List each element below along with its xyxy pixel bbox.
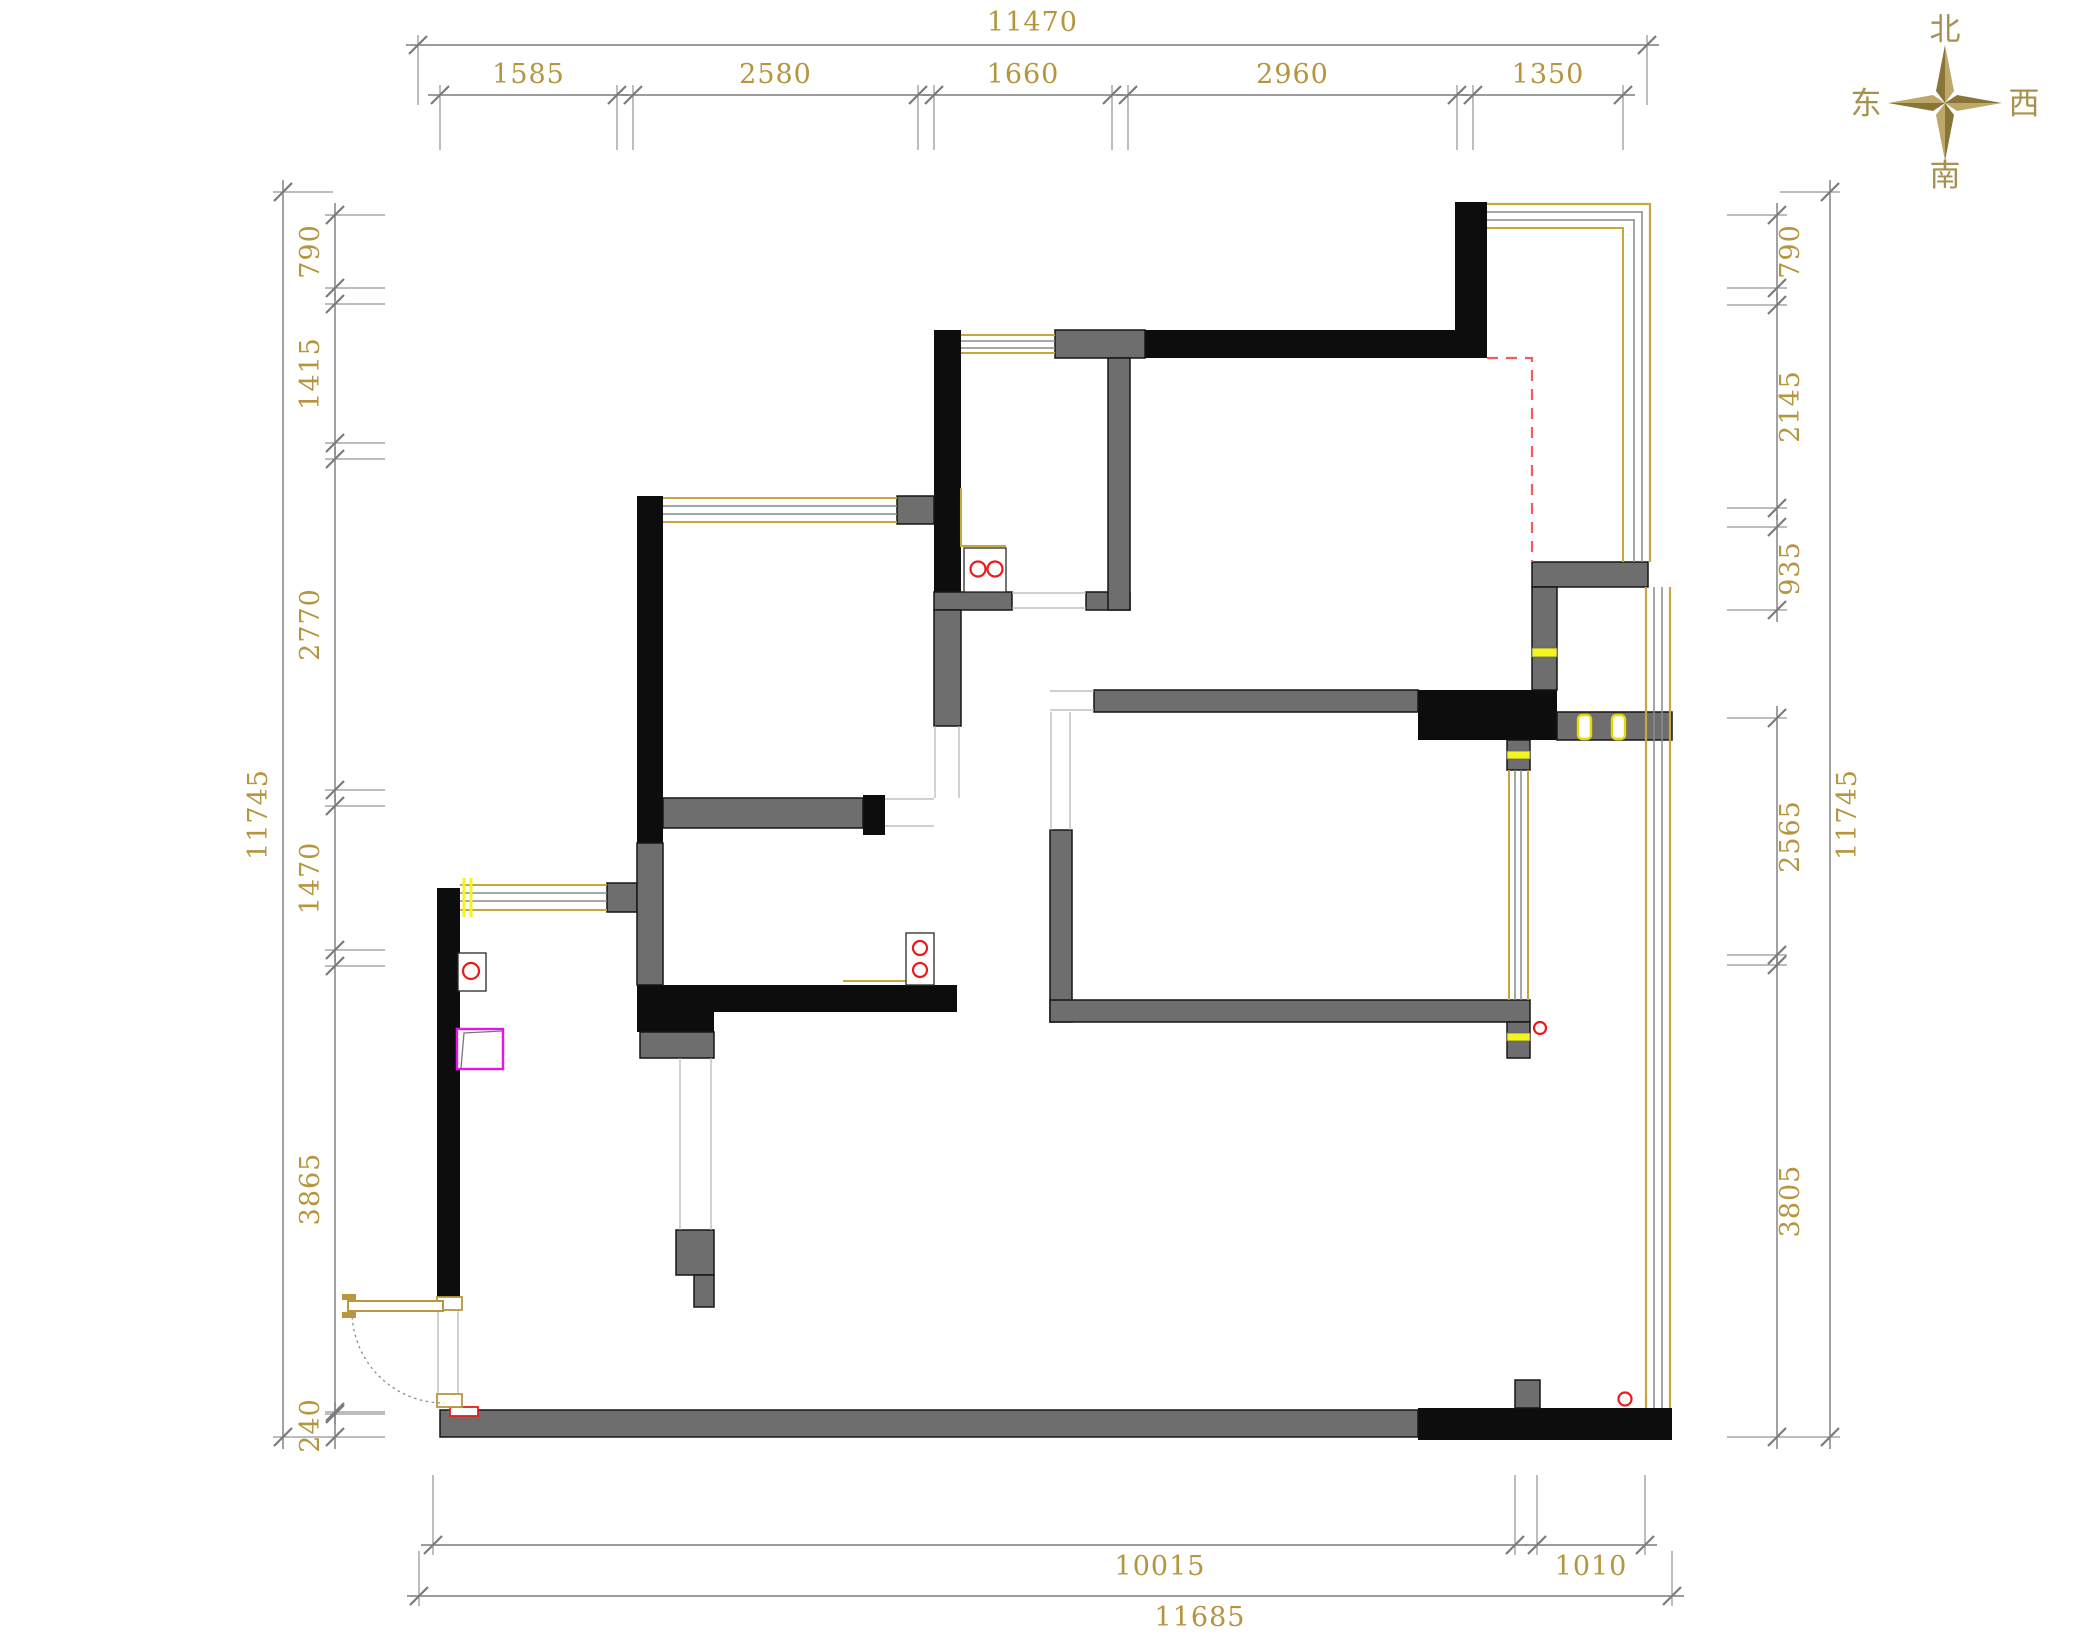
wall-kitchen-right [1108, 358, 1130, 610]
dim-label: 11685 [1155, 1602, 1246, 1633]
dim-label: 790 [1775, 224, 1806, 279]
wall-topright-bar [1455, 202, 1487, 330]
compass-south-label: 南 [1930, 158, 1961, 194]
wall-underbath-ext [640, 1032, 714, 1058]
dim-label: 10015 [1115, 1551, 1206, 1582]
walls-gray [440, 330, 1672, 1437]
wall-left-outer [437, 888, 460, 1301]
window-top-wall [961, 335, 1055, 353]
socket-icon [1612, 715, 1625, 739]
compass: 北 南 东 西 [1851, 12, 2040, 194]
socket-icon [1578, 715, 1591, 739]
dim-label: 1010 [1555, 1551, 1628, 1582]
wall-bottom-post [1515, 1380, 1540, 1408]
wall-foyer-window-post [607, 883, 637, 912]
wall-bedroom-bottom [1050, 1000, 1530, 1022]
red-dashed-line [1487, 358, 1532, 562]
compass-east-label: 东 [1851, 86, 1882, 122]
dim-label: 240 [295, 1398, 326, 1453]
wall-top [1145, 330, 1487, 358]
wall-bath-top [663, 798, 863, 828]
kitchen-counter-line [961, 488, 1006, 546]
floor-plan-page: 1147015852580166029601350117457901415277… [0, 0, 2096, 1637]
door-swing-arc [352, 1311, 444, 1403]
wall-balcony-sill-leg [1532, 587, 1557, 690]
wall-bedroom-top [1094, 690, 1418, 712]
dim-label: 1585 [492, 59, 565, 90]
fixtures [342, 358, 1632, 1416]
window-foyer [460, 878, 607, 917]
dim-label: 11470 [987, 7, 1078, 38]
window-bed2 [663, 498, 897, 522]
wall-bath-post [863, 795, 885, 835]
wall-kitchen-left [934, 330, 961, 594]
door-leaf [348, 1301, 443, 1311]
dim-label: 2770 [295, 588, 326, 661]
wall-bath-left [637, 843, 663, 985]
dim-label: 11745 [1832, 769, 1863, 860]
wall-top-gray-block [1055, 330, 1145, 358]
wall-bath-bottom [637, 985, 957, 1012]
wall-bed2-left [637, 496, 663, 843]
wall-kitchen-bottom [934, 592, 1012, 610]
dim-label: 2960 [1256, 59, 1329, 90]
dim-label: 11745 [243, 769, 274, 860]
wall-entry-stub [676, 1230, 714, 1275]
dim-label: 1660 [987, 59, 1060, 90]
dim-label: 935 [1775, 541, 1806, 596]
compass-north-label: 北 [1930, 12, 1961, 48]
window-balcony-top [1487, 204, 1650, 562]
wall-bottom-gray [440, 1410, 1418, 1437]
dim-label: 2565 [1775, 800, 1806, 873]
window-bedroom-right [1509, 770, 1528, 1000]
red-mark-rect [450, 1407, 478, 1416]
wall-entry-stub-step [694, 1275, 714, 1307]
window-balcony-right [1646, 587, 1670, 1408]
dimension-chains: 1147015852580166029601350117457901415277… [243, 7, 1863, 1633]
dim-label: 3805 [1775, 1165, 1806, 1238]
dim-label: 3865 [295, 1153, 326, 1226]
floor-plan-drawing: 1147015852580166029601350117457901415277… [0, 0, 2096, 1637]
compass-west-label: 西 [2009, 86, 2040, 122]
wall-bed2-window-post [897, 496, 934, 524]
dim-label: 790 [295, 224, 326, 279]
plumbing-point-icon [1534, 1022, 1546, 1034]
entry-door [342, 1294, 462, 1407]
walls-black [437, 202, 1672, 1440]
dim-label: 1470 [295, 842, 326, 915]
dim-label: 2580 [739, 59, 812, 90]
wall-bedroom-block [1418, 690, 1557, 740]
wall-bottom-right [1418, 1408, 1672, 1440]
dim-label: 1415 [295, 337, 326, 410]
dim-label: 1350 [1512, 59, 1585, 90]
dim-label: 2145 [1775, 370, 1806, 443]
wall-passage [934, 610, 961, 726]
compass-star-icon [1888, 45, 2002, 161]
wall-balcony-sill [1532, 562, 1648, 587]
wall-bath-bottom-ext [637, 1012, 714, 1032]
wall-bedroom-left [1050, 830, 1072, 1022]
plumbing-point-icon [1619, 1393, 1632, 1406]
